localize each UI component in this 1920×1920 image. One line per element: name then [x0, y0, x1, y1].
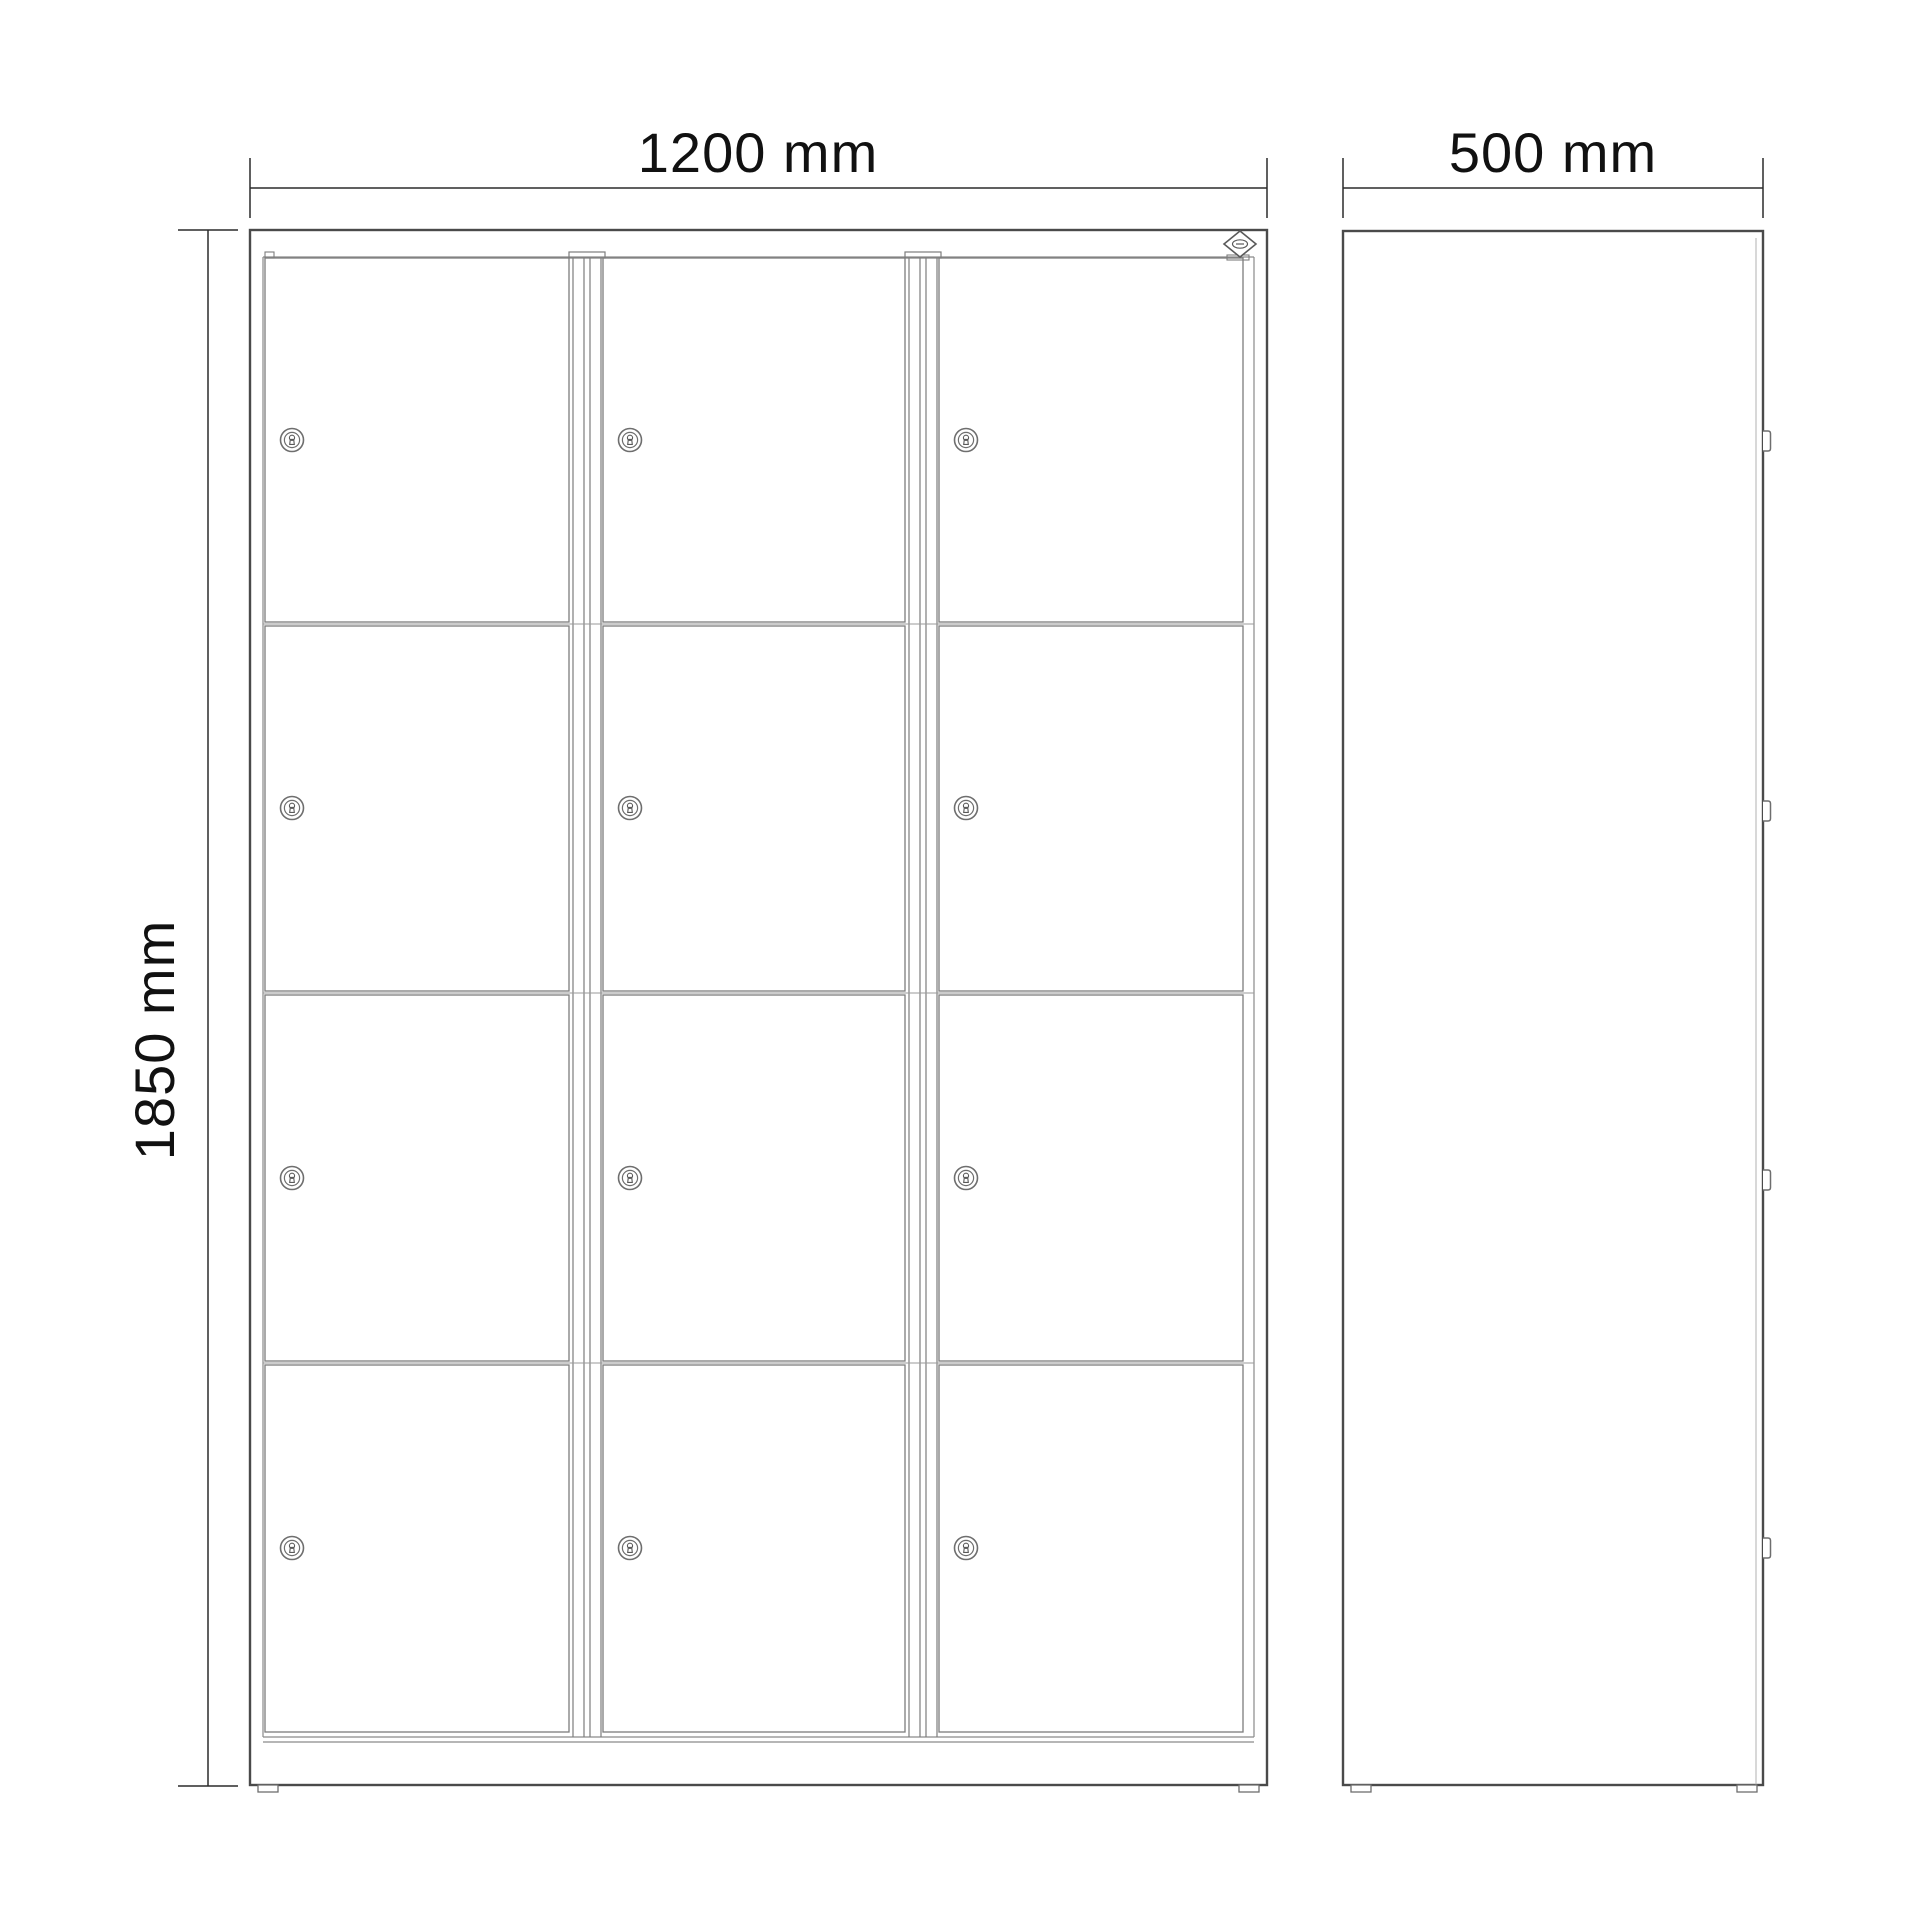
- front-frame-rails: [263, 257, 1254, 1742]
- levelling-foot: [1351, 1785, 1371, 1792]
- lock-icon: [955, 429, 978, 452]
- lock-icon: [619, 1167, 642, 1190]
- lock-icon: [619, 1537, 642, 1560]
- width-dimension-label: 1200 mm: [638, 121, 878, 184]
- locker-door: [939, 258, 1243, 622]
- lock-icon: [619, 429, 642, 452]
- hinge-icon: [1763, 431, 1771, 451]
- lock-icon: [619, 797, 642, 820]
- lock-icon: [281, 429, 304, 452]
- locker-door: [265, 1365, 569, 1732]
- depth-dimension-label: 500 mm: [1449, 121, 1657, 184]
- levelling-foot: [1737, 1785, 1757, 1792]
- levelling-foot: [1239, 1785, 1259, 1792]
- locks: [281, 429, 978, 1560]
- door-top-caps: [265, 252, 1249, 260]
- mullion: [569, 252, 605, 1737]
- locker-door: [265, 258, 569, 622]
- locker-door: [603, 1365, 905, 1732]
- hinge-icon: [1763, 1170, 1771, 1190]
- locker-door: [939, 1365, 1243, 1732]
- side-cabinet-outline: [1343, 231, 1763, 1785]
- hinge-icon: [1763, 1538, 1771, 1558]
- lock-icon: [955, 797, 978, 820]
- lock-icon: [281, 1167, 304, 1190]
- levelling-foot: [258, 1785, 278, 1792]
- lock-icon: [281, 1537, 304, 1560]
- lock-icon: [281, 797, 304, 820]
- front-view: [250, 230, 1267, 1792]
- dimension-width: 1200 mm: [250, 121, 1267, 218]
- brand-diamond-logo-icon: [1224, 231, 1256, 257]
- dimension-height: 1850 mm: [123, 230, 238, 1786]
- front-cabinet-outline: [250, 230, 1267, 1785]
- locker-door: [939, 626, 1243, 991]
- locker-door: [265, 995, 569, 1361]
- lock-icon: [955, 1537, 978, 1560]
- locker-door: [603, 258, 905, 622]
- locker-door: [603, 995, 905, 1361]
- dimension-depth: 500 mm: [1343, 121, 1763, 218]
- drawing-canvas: 1200 mm 500 mm 1850 mm: [0, 0, 1920, 1920]
- hinge-icon: [1763, 801, 1771, 821]
- lock-icon: [955, 1167, 978, 1190]
- side-view: [1343, 231, 1771, 1792]
- locker-door: [265, 626, 569, 991]
- locker-technical-drawing: 1200 mm 500 mm 1850 mm: [0, 0, 1920, 1920]
- mullion: [905, 252, 941, 1737]
- height-dimension-label: 1850 mm: [123, 920, 186, 1160]
- locker-door: [603, 626, 905, 991]
- row-separators: [263, 624, 1254, 1363]
- locker-door: [939, 995, 1243, 1361]
- door-grid: [265, 258, 1243, 1732]
